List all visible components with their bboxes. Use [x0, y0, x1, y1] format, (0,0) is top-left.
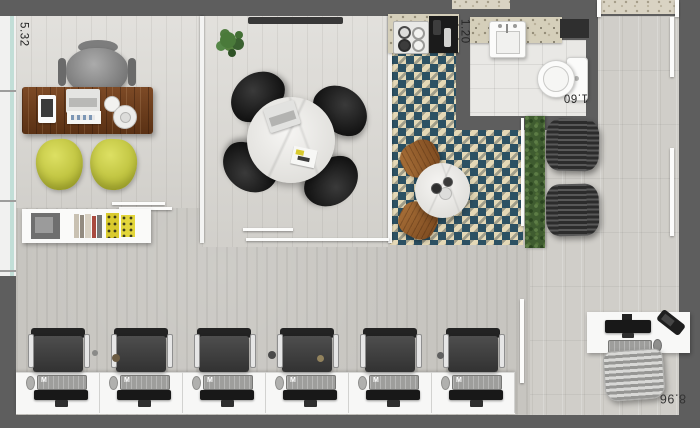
task-chair-seat — [199, 336, 249, 372]
paper-print — [71, 115, 95, 120]
laptop-keys — [69, 98, 97, 107]
yellow-box-2 — [121, 215, 135, 237]
media-console — [248, 17, 343, 24]
plant-icon — [212, 26, 246, 58]
desk-monitor — [283, 390, 337, 400]
workstation-3: M — [182, 328, 265, 413]
floor-plan: M M M M M — [0, 0, 700, 428]
bathroom-window-strip — [452, 0, 510, 9]
task-chair-arm-right — [499, 334, 505, 368]
entry-door-frame-right — [675, 0, 679, 17]
window-band-left — [0, 16, 16, 276]
phone-keys — [661, 314, 675, 327]
hedge-planter — [525, 116, 545, 248]
task-chair-arm-right — [167, 334, 173, 368]
task-chair-arm-right — [333, 334, 339, 368]
yellow-box-1 — [106, 213, 119, 238]
window-mullion-1 — [0, 90, 16, 92]
saucer-cup — [120, 112, 131, 123]
loose-item-5 — [437, 352, 444, 359]
desk-laptop — [66, 89, 100, 113]
book-5 — [97, 215, 102, 238]
lounge-pouf-1 — [546, 119, 600, 172]
workstation-6: M — [431, 328, 514, 413]
desk-mouse — [192, 376, 201, 390]
loose-item-2 — [112, 354, 120, 362]
lounge-pouf-2 — [546, 184, 600, 237]
desk-mouse — [109, 376, 118, 390]
desk-keyboard: M — [452, 375, 502, 390]
workstation-1: M — [16, 328, 99, 413]
desk-saucer — [113, 105, 137, 129]
monitor-stand — [304, 400, 317, 407]
entry-door-frame-left — [597, 0, 601, 17]
monitor-stand — [387, 400, 400, 407]
reception-monitor — [605, 320, 651, 333]
book-2 — [80, 215, 84, 238]
dim-label-1-60: 1.60 — [538, 91, 588, 103]
task-chair-seat — [282, 336, 332, 372]
printer — [31, 213, 60, 239]
burner-3 — [398, 39, 411, 52]
book-4 — [92, 216, 96, 238]
monitor-stand — [221, 400, 234, 407]
desk-mouse — [26, 376, 35, 390]
task-chair-seat — [33, 336, 83, 372]
dim-label-1-20: 1.20 — [458, 19, 470, 59]
desk-mouse — [358, 376, 367, 390]
reception-monitor-stand — [622, 333, 634, 338]
desk-papers — [67, 111, 101, 124]
monitor-stand — [470, 400, 483, 407]
task-chair-arm-left — [277, 334, 283, 368]
book-1 — [74, 214, 79, 238]
sideboard — [22, 209, 151, 243]
desk-mouse — [441, 376, 450, 390]
bottle-white — [444, 28, 451, 47]
workstation-4: M — [265, 328, 348, 413]
task-chair-arm-left — [194, 334, 200, 368]
plant-leaves — [220, 32, 236, 48]
desk-monitor — [34, 390, 88, 400]
book-3 — [85, 214, 91, 238]
task-chair-seat — [448, 336, 498, 372]
phone-screen — [41, 99, 53, 117]
desk-phone — [38, 95, 56, 123]
desk-monitor — [117, 390, 171, 400]
workstation-5: M — [348, 328, 431, 413]
window-mullion-2 — [0, 200, 16, 202]
task-chair-arm-left — [360, 334, 366, 368]
desk-keyboard: M — [286, 375, 336, 390]
entry-door-floor — [601, 0, 676, 14]
meeting-room — [202, 16, 388, 247]
private-office — [16, 16, 200, 246]
openoffice-glass-panel — [520, 299, 524, 383]
monitor-stand — [55, 400, 68, 407]
loose-item-4 — [317, 355, 324, 362]
desk-keyboard: M — [369, 375, 419, 390]
corridor-glass-bottom — [670, 148, 674, 236]
window-mullion-3 — [0, 270, 16, 272]
cafe-table — [415, 163, 470, 218]
window-glass — [10, 16, 14, 276]
dim-label-5-32: 5.32 — [17, 22, 29, 70]
task-chair-seat — [116, 336, 166, 372]
desk-monitor — [366, 390, 420, 400]
workstation-2: M — [99, 328, 182, 413]
chair-arm-right — [128, 58, 136, 86]
keyboard-brand-label: M — [456, 377, 462, 384]
loose-item-3 — [268, 351, 276, 359]
desk-mouse — [275, 376, 284, 390]
kitchen-sink-counter — [429, 16, 458, 53]
meeting-laptop-keys — [269, 110, 297, 127]
keyboard-brand-label: M — [124, 377, 130, 384]
cooktop — [393, 21, 429, 54]
cafe-cup-1 — [431, 183, 442, 194]
burner-1 — [398, 26, 411, 39]
dim-label-8-96: 8.96 — [638, 392, 686, 405]
loose-item-1 — [92, 350, 98, 356]
task-chair-arm-left — [28, 334, 34, 368]
keyboard-brand-label: M — [207, 377, 213, 384]
desk-keyboard: M — [37, 375, 87, 390]
task-chair-arm-right — [84, 334, 90, 368]
task-chair-arm-right — [416, 334, 422, 368]
task-chair-arm-left — [443, 334, 449, 368]
desk-monitor — [449, 390, 503, 400]
desk-keyboard: M — [120, 375, 170, 390]
task-chair-arm-right — [250, 334, 256, 368]
chair-arm-left — [58, 58, 66, 86]
keyboard-brand-label: M — [290, 377, 296, 384]
desk-row-end — [514, 372, 515, 413]
desk-keyboard: M — [203, 375, 253, 390]
paper-mark-yellow — [295, 149, 304, 156]
corridor-glass-top — [670, 17, 674, 77]
monitor-stand — [138, 400, 151, 407]
keyboard-brand-label: M — [373, 377, 379, 384]
guest-chair-yellow-1 — [34, 137, 84, 191]
keyboard-brand-label: M — [41, 377, 47, 384]
bathroom-shelf — [560, 19, 589, 38]
burner-4 — [412, 39, 425, 52]
bottle-dark — [433, 20, 441, 35]
printer-top — [35, 217, 53, 233]
guest-chair-yellow-2 — [89, 138, 139, 191]
task-chair-seat — [365, 336, 415, 372]
paper-mark-dark — [297, 156, 310, 162]
desk-monitor — [200, 390, 254, 400]
task-chair-arm-left — [111, 334, 117, 368]
cafe-cup-2 — [443, 177, 453, 187]
